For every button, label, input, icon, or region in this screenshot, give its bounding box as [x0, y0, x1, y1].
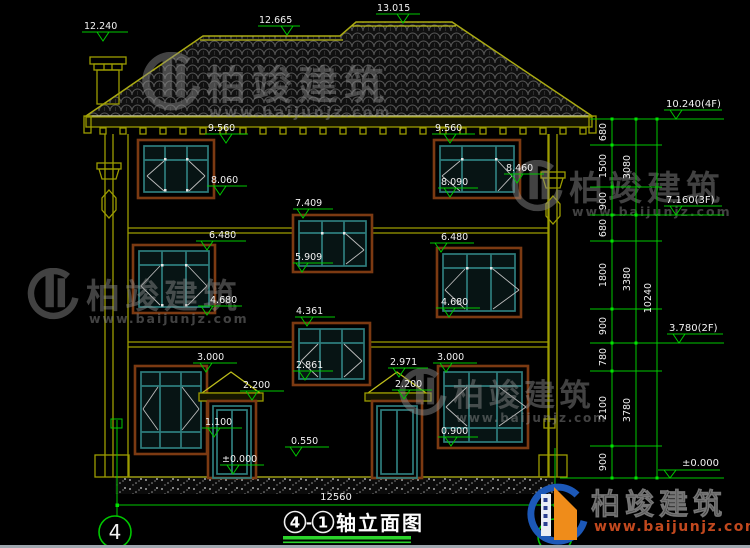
elev-eave-right: 9.560	[435, 123, 462, 134]
elev-chimney: 12.240	[84, 21, 117, 32]
dim-segment: 900	[598, 192, 609, 210]
elevation-svg: 柏竣建筑 www.baijunjz.com 柏竣建筑 www.baijunjz.…	[0, 0, 750, 548]
watermark-logo-icon	[31, 271, 75, 316]
elev-mid-top: 4.361	[296, 306, 323, 317]
elev-plinth-center: 0.550	[291, 436, 318, 447]
dim-segment: 900	[598, 453, 609, 471]
elev-mid-bottom: 2.861	[296, 360, 323, 371]
elev-ridge-high: 13.015	[377, 3, 410, 14]
dim-segment: 2100	[598, 396, 609, 420]
dim-segment: 1800	[598, 263, 609, 287]
elev-stair-bottom: 5.909	[295, 252, 322, 263]
elev-w3-left-bottom: 8.060	[211, 175, 238, 186]
grid-bubble-4-label: 4	[109, 520, 122, 544]
dim-segment: 1500	[598, 154, 609, 178]
hopper-left	[99, 169, 119, 179]
left-base-block	[95, 455, 129, 477]
window-3f-left	[138, 140, 214, 198]
dim-overall-height: 10240	[643, 283, 654, 313]
elev-eave-left: 9.560	[208, 123, 235, 134]
elev-w1-right-top: 3.000	[437, 352, 464, 363]
dim-segment: 680	[598, 219, 609, 237]
elev-w2-right-bottom: 4.680	[441, 297, 468, 308]
dim-segment: 900	[598, 317, 609, 335]
title-num-from: 4	[290, 514, 300, 532]
cad-elevation-drawing: 柏竣建筑 www.baijunjz.com 柏竣建筑 www.baijunjz.…	[0, 0, 750, 548]
elev-ground-left: ±0.000	[222, 454, 257, 465]
title-num-to: 1	[318, 514, 328, 532]
diamond-ornament-left	[102, 190, 116, 218]
title-dash: -	[306, 514, 312, 532]
brand-logo: 柏竣建筑 www.baijunjz.com	[531, 487, 750, 541]
dim-floor-total: 3080	[622, 155, 633, 179]
title-underline-thin	[283, 542, 411, 544]
dim-floor-total: 3780	[622, 398, 633, 422]
elev-porch-right-slab: 2.200	[395, 379, 422, 390]
elev-door-left-sill: 1.100	[205, 417, 232, 428]
logo-url-text: www.baijunjz.com	[594, 519, 750, 535]
title-text: 轴立面图	[336, 511, 424, 535]
window-mid	[293, 323, 370, 385]
title-underline-thick	[283, 536, 411, 540]
watermark-url: www.baijunjz.com	[456, 411, 607, 425]
hopper-flare-left	[97, 163, 121, 169]
elev-stair-top: 7.409	[295, 198, 322, 209]
level-4f: 10.240(4F)	[666, 99, 721, 110]
elev-w3-right-bottom: 8.090	[441, 177, 468, 188]
elev-w1-left-top: 3.000	[197, 352, 224, 363]
elev-ridge-low: 12.665	[259, 15, 292, 26]
watermark-brand: 柏竣建筑	[206, 63, 390, 109]
drawing-title: 4 - 1 轴立面图	[283, 511, 424, 543]
watermark-url: www.baijunjz.com	[209, 105, 392, 121]
level-2f: 3.780(2F)	[669, 323, 718, 334]
watermark-lower-center: 柏竣建筑 www.baijunjz.com	[402, 371, 607, 425]
dim-segment: 680	[598, 123, 609, 141]
elev-porch-left-slab: 2.200	[243, 380, 270, 391]
elev-porch-right-apex: 2.971	[390, 357, 417, 368]
eave-dentils	[100, 128, 586, 134]
watermark-url: www.baijunjz.com	[89, 311, 249, 326]
elev-w2-left-bottom: 4.680	[210, 295, 237, 306]
segment-values: 680 1500 900 680 1800 900 780 2100 900	[598, 123, 609, 471]
dim-overall-width: 12560	[320, 492, 352, 503]
window-1f-left	[135, 366, 207, 454]
dim-segment: 780	[598, 348, 609, 366]
elev-w2-right-top: 6.480	[441, 232, 468, 243]
level-ground-right: ±0.000	[682, 458, 719, 469]
elev-pilaster-right: 8.460	[506, 163, 533, 174]
elev-w1-right-bottom: 0.900	[441, 426, 468, 437]
elev-w2-left-top: 6.480	[209, 230, 236, 241]
right-base-block	[539, 455, 567, 477]
dim-floor-total: 3380	[622, 267, 633, 291]
level-3f: 7.160(3F)	[666, 195, 715, 206]
watermark-brand: 柏竣建筑	[453, 378, 595, 414]
storey-markers	[658, 110, 723, 478]
logo-brand-text: 柏竣建筑	[591, 487, 727, 521]
